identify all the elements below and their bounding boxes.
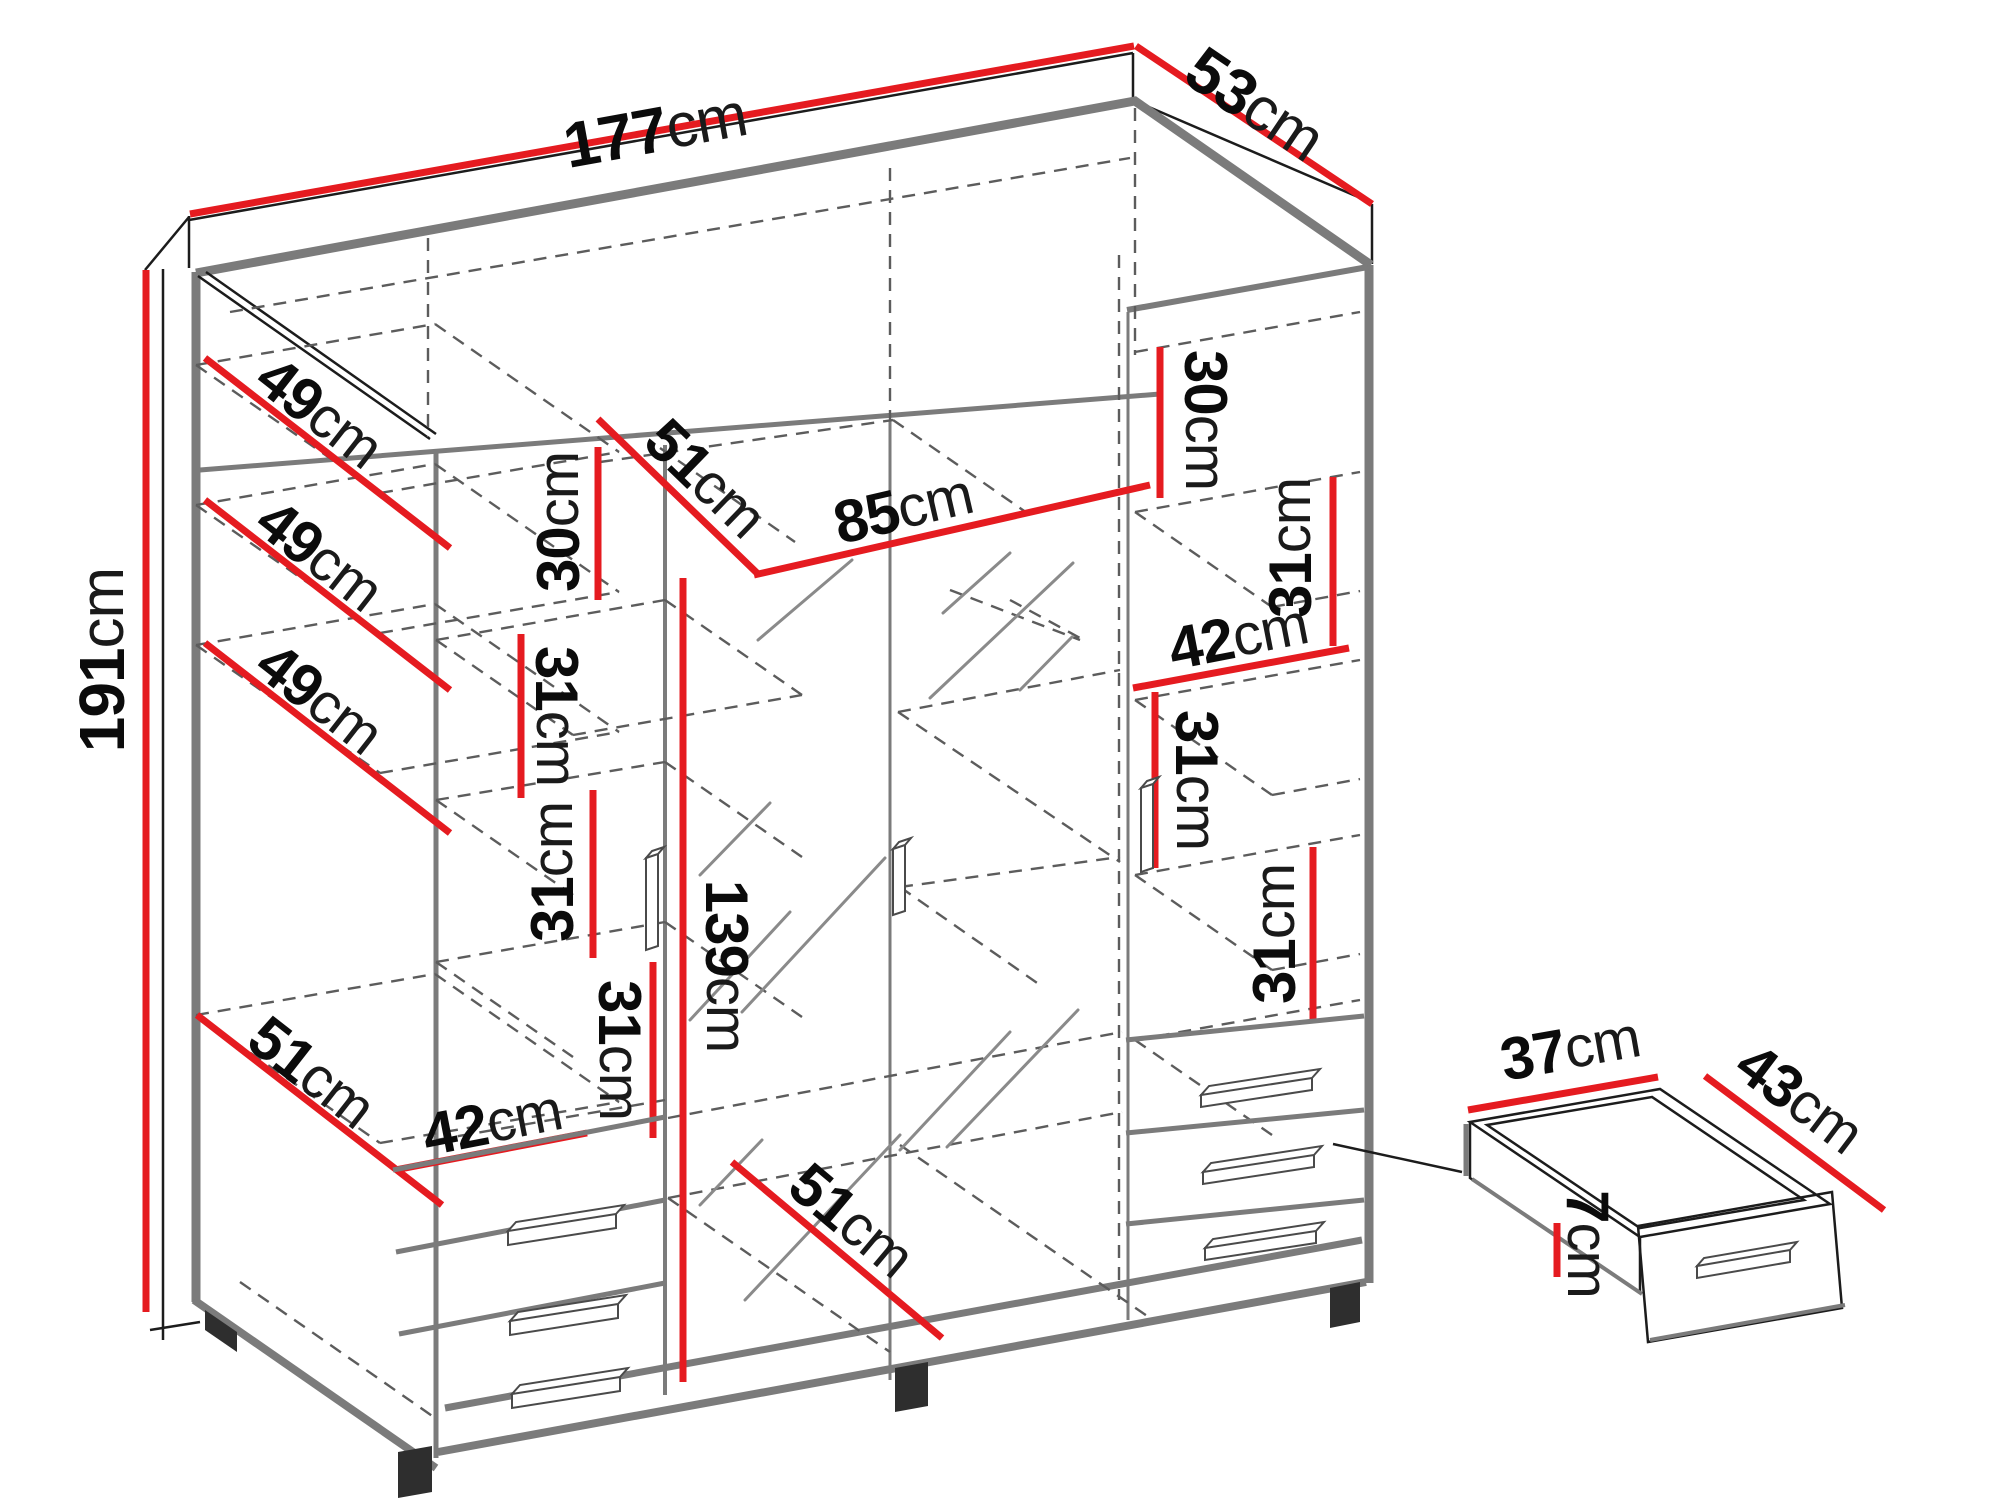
dim-label-center-gap-2: 31cm (519, 802, 586, 942)
dim-label-drawer-width: 37cm (1495, 1003, 1645, 1093)
drawer-handle (1697, 1242, 1797, 1278)
drawer-handle (508, 1205, 624, 1245)
diagram-canvas: 177cm 53cm 191cm 49cm 49cm 49cm 51cm 30c… (0, 0, 2000, 1500)
mirror-door-handle (893, 838, 911, 915)
dim-label-center-gap-1: 31cm (524, 646, 591, 786)
dim-label-right-shelf-width: 42cm (1163, 590, 1313, 682)
drawer-handle (1203, 1146, 1322, 1184)
drawer-handle (1201, 1069, 1320, 1107)
dim-label-left-shelf-3: 49cm (244, 628, 396, 767)
dim-label-right-gap-3: 31cm (1241, 864, 1308, 1004)
right-drawer-stack (1126, 1016, 1364, 1260)
drawer-handle (1205, 1222, 1324, 1260)
left-side-panel (150, 269, 436, 1468)
dim-label-drawer-height: 7cm (1555, 1190, 1622, 1298)
dim-label-center-gap-3: 31cm (587, 980, 654, 1120)
dim-label-left-shelf-4: 51cm (236, 1002, 388, 1141)
dim-label-left-shelf-2: 49cm (244, 485, 396, 624)
dim-label-height-total: 191cm (66, 568, 138, 752)
dim-label-width-total: 177cm (558, 78, 752, 182)
dim-label-right-top-height: 30cm (1173, 350, 1240, 490)
dim-label-hanging-height: 139cm (694, 880, 761, 1052)
dim-label-depth-total: 53cm (1173, 32, 1337, 175)
drawer-handle (512, 1368, 628, 1408)
wardrobe-dimension-diagram: 177cm 53cm 191cm 49cm 49cm 49cm 51cm 30c… (0, 0, 2000, 1500)
dim-label-center-top-height: 30cm (525, 452, 592, 592)
left-door-handle (646, 847, 664, 950)
dim-label-right-gap-2: 31cm (1164, 710, 1231, 850)
dim-label-left-drawer-width: 42cm (417, 1076, 567, 1168)
dimension-labels: 177cm 53cm 191cm 49cm 49cm 49cm 51cm 30c… (66, 32, 1876, 1298)
dim-label-hanging-width: 85cm (827, 460, 979, 557)
